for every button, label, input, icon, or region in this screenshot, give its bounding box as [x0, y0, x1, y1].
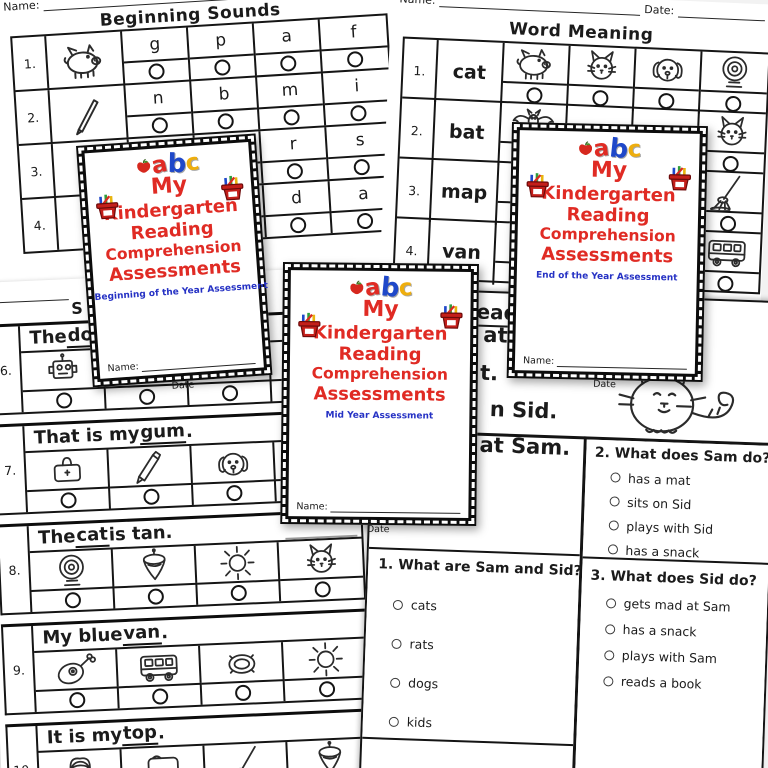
cover-name-row: Name: [107, 353, 255, 374]
pig-icon [58, 38, 110, 82]
answer-bubble [353, 159, 370, 176]
page-title-fragment: S [71, 299, 84, 319]
answer-option: dogs [390, 675, 575, 696]
option-bubble [389, 716, 399, 726]
answer-bubble [357, 213, 374, 230]
cover-date-row: Date [554, 375, 655, 391]
dog-icon [209, 443, 257, 483]
dog-icon [644, 49, 692, 89]
bag-icon [43, 450, 91, 490]
answer-option: sits on Sid [609, 494, 768, 515]
answer-cell [259, 103, 324, 129]
answer-bubble [318, 681, 335, 698]
choice-letter: i [323, 69, 391, 103]
pig-icon [512, 43, 560, 83]
picture-cell [34, 649, 119, 690]
choice-letter: f [320, 15, 388, 49]
answer-bubble [717, 275, 734, 292]
pen-icon [62, 92, 114, 136]
answer-cell [193, 479, 277, 505]
option-label: gets mad at Sam [623, 596, 731, 615]
answer-option: has a snack [607, 542, 768, 563]
answer-bubble [350, 105, 367, 122]
option-label: sits on Sid [627, 494, 692, 511]
story-line-fragment: t. [480, 361, 499, 386]
answer-bubble [68, 692, 85, 709]
cover-date-row: Date [328, 520, 429, 535]
name-line [0, 299, 69, 304]
choice-letter: p [188, 24, 254, 58]
answer-bubble [592, 90, 609, 107]
row-number: 10. [7, 726, 41, 768]
sentence-row: 10.It is my top. [5, 708, 375, 768]
picture-choice-cell [700, 52, 768, 117]
question-2-box: 2. What does Sam do?has a matsits on Sid… [582, 439, 768, 564]
letter-choice-cell: r [260, 127, 329, 183]
answer-bubble [214, 59, 231, 76]
cover-title-line: Comprehension [290, 365, 470, 385]
sentence-keyword: gum [139, 420, 186, 445]
picture-cell [503, 43, 569, 84]
picture-cell [113, 546, 198, 587]
flower-pot-icon [665, 163, 696, 196]
option-bubble [604, 650, 614, 660]
logo-letter-a: a [149, 152, 169, 178]
abc-logo: abc [135, 149, 200, 179]
name-label: Name: [399, 0, 436, 7]
sentence-pre: It is my [46, 724, 122, 748]
answer-bubble [722, 156, 739, 173]
logo-letter-b: b [379, 274, 400, 302]
answer-bubble [148, 63, 165, 80]
letter-choice-cell: i [323, 69, 392, 125]
flower-pot-icon [522, 170, 553, 203]
answer-cell [266, 211, 331, 237]
choice-letter: g [122, 28, 188, 62]
sentence-pre: That is my [33, 423, 140, 449]
answer-bubble [217, 113, 234, 130]
flower-pot-icon [91, 191, 123, 225]
answer-bubble [234, 685, 251, 702]
apple-icon [349, 280, 365, 296]
answer-option: reads a book [603, 673, 765, 694]
answer-cell [110, 483, 194, 509]
flower-pot-icon [216, 172, 248, 206]
answer-cell [31, 586, 115, 612]
option-bubble [393, 599, 403, 609]
answer-cell [256, 50, 321, 76]
picture-cell [283, 639, 368, 680]
answer-cell [27, 487, 111, 513]
sentence-post: . [161, 622, 169, 643]
picture-choice-cell [634, 49, 703, 114]
cover-title-line: Assessments [290, 383, 470, 406]
sentence-pre: The [38, 526, 76, 549]
logo-letter-b: b [608, 135, 629, 163]
question-label: What are Sam and Sid? [398, 557, 582, 579]
question-text: 3. What does Sid do? [590, 568, 768, 590]
answer-cell [119, 683, 203, 709]
name-label: Name: [523, 355, 554, 367]
sentence-pre: My blue [42, 624, 123, 648]
date-label: Date [554, 378, 655, 391]
logo-letter-c: c [184, 151, 201, 176]
picture-choice-cell [502, 43, 571, 108]
option-label: has a snack [622, 622, 696, 640]
sentence-post: is tan. [108, 522, 172, 546]
answer-bubble [226, 485, 243, 502]
choice-letter: m [257, 73, 323, 107]
answer-bubble [151, 117, 168, 134]
mop-icon [706, 172, 754, 212]
answer-option: rats [391, 636, 576, 657]
option-bubble [610, 472, 620, 482]
name-line [557, 366, 687, 370]
question-number: 3. [590, 568, 610, 585]
top-icon [130, 546, 178, 586]
name-row-fragment: Name: [0, 287, 69, 305]
name-line [331, 512, 461, 514]
picture-cell [204, 742, 289, 768]
sentence-pre: The [29, 326, 67, 349]
picture-cell [117, 646, 202, 687]
option-bubble [609, 496, 619, 506]
answer-bubble [347, 51, 364, 68]
choice-letter: n [125, 82, 191, 116]
cat-icon [708, 112, 756, 152]
cover-mid-year: abcMyKindergartenReadingComprehensionAss… [280, 262, 479, 526]
fan-icon [47, 550, 95, 590]
cover-title-line: Assessments [517, 243, 697, 268]
picture-cell [49, 85, 128, 142]
answer-cell [190, 54, 255, 80]
letter-choice-cell: d [264, 181, 333, 237]
row-number: 9. [3, 626, 37, 713]
answer-bubble [60, 492, 77, 509]
sentence-post: . [157, 722, 165, 743]
sentence-keyword: cat [75, 524, 109, 548]
logo-letter-c: c [627, 138, 642, 162]
picture-cell [279, 539, 364, 580]
picture-cell [698, 112, 766, 153]
question-number: 1. [378, 556, 398, 573]
cat-icon [578, 46, 626, 86]
cover-title-line: Reading [290, 343, 470, 366]
mop-icon [222, 742, 270, 768]
cover-name-row: Name: [523, 355, 687, 369]
girl-icon [56, 750, 104, 768]
flower-pot-icon [294, 310, 324, 342]
flower-pot-icon [436, 302, 466, 334]
answer-option: gets mad at Sam [605, 595, 767, 616]
answer-bubble [143, 488, 160, 505]
answer-cell [114, 583, 198, 609]
option-label: cats [411, 597, 437, 613]
picture-cell [39, 749, 124, 768]
cat-icon [297, 539, 345, 579]
picture-cell [30, 549, 115, 590]
cover-date-row: Date [137, 374, 230, 394]
question-text: 1. What are Sam and Sid? [378, 556, 579, 579]
cover-subtitle: End of the Year Assessment [517, 270, 697, 284]
picture-cell [200, 642, 285, 683]
fan-icon [711, 52, 759, 92]
answer-bubble [280, 55, 297, 72]
choice-letter: b [191, 77, 257, 111]
option-label: has a snack [625, 542, 699, 560]
answer-cell [202, 679, 286, 705]
picture-cell [25, 450, 110, 491]
apple-icon [577, 140, 593, 156]
letter-choice-cell: b [191, 77, 260, 133]
word-cell: bat [433, 100, 502, 165]
option-label: reads a book [621, 674, 702, 692]
choice-letter: d [264, 181, 330, 215]
cover-beginning-of-year: abcMyKindergartenReadingComprehensionAss… [76, 133, 272, 387]
option-label: dogs [408, 675, 439, 691]
date-label: Date [328, 523, 429, 535]
row-number: 1. [402, 39, 439, 102]
answer-cell [285, 675, 369, 701]
cover-subtitle: Mid Year Assessment [289, 410, 469, 422]
question-label: What does Sam do? [615, 445, 768, 466]
answer-bubble [526, 87, 543, 104]
question-number: 2. [595, 444, 615, 461]
option-bubble [605, 624, 615, 634]
option-bubble [390, 677, 400, 687]
row-number: 4. [22, 198, 59, 252]
picture-cell [635, 49, 701, 90]
answer-cell [127, 111, 192, 137]
van-icon [703, 232, 751, 272]
logo-letter-c: c [398, 276, 413, 300]
picture-cell [196, 542, 281, 583]
robot-icon [39, 350, 87, 390]
abc-logo: abc [577, 135, 641, 162]
cover-name-row: Name: [296, 501, 460, 514]
question-3-box: 3. What does Sid do?gets mad at Samhas a… [574, 560, 768, 768]
choice-letter: a [254, 20, 320, 54]
answer-bubble [725, 96, 742, 113]
row-number: 7. [0, 426, 28, 513]
answer-cell [280, 576, 364, 602]
name-label: Name: [107, 361, 139, 374]
cover-end-of-year: abcMyKindergartenReadingComprehensionAss… [507, 122, 708, 382]
sun-icon [213, 543, 261, 583]
answer-option: plays with Sid [608, 518, 768, 539]
answer-cell [322, 45, 389, 71]
letter-choice-cell: m [257, 73, 326, 129]
choice-letter: r [260, 127, 326, 161]
answer-cell [124, 58, 189, 84]
story-line-fragment: n Sid. [489, 397, 557, 423]
row-number: 3. [397, 158, 434, 221]
cot-icon [139, 746, 187, 768]
question-text: 2. What does Sam do? [595, 444, 768, 466]
letter-choice-cell: a [254, 19, 323, 75]
answer-bubble [720, 216, 737, 233]
option-bubble [391, 638, 401, 648]
answer-bubble [286, 163, 303, 180]
option-bubble [608, 520, 618, 530]
answer-bubble [314, 581, 331, 598]
answer-option: kids [389, 714, 574, 735]
answer-cell [193, 107, 258, 133]
sun-icon [301, 639, 349, 679]
answer-cell [262, 157, 327, 183]
answer-bubble [151, 688, 168, 705]
option-label: rats [409, 636, 434, 652]
answer-option: has a mat [610, 470, 768, 491]
sentence-post: . [185, 421, 193, 442]
option-label: plays with Sid [626, 518, 713, 536]
name-label: Name: [296, 501, 327, 512]
answer-option: plays with Sam [604, 647, 766, 668]
word-cell: cat [436, 40, 505, 105]
letter-choice-cell: p [188, 23, 257, 79]
answer-bubble [658, 93, 675, 110]
sentence-keyword: van [122, 621, 162, 646]
name-label: Name: [3, 0, 40, 14]
answer-bubble [290, 217, 307, 234]
answer-bubble [64, 592, 81, 609]
letter-choice-cell: g [122, 28, 191, 84]
row-number: 8. [0, 526, 32, 613]
row-number: 1. [12, 36, 49, 90]
answer-bubble [230, 585, 247, 602]
question-1-box: 1. What are Sam and Sid?catsratsdogskids [362, 547, 580, 746]
option-bubble [603, 676, 613, 686]
row-number: 3. [19, 144, 56, 198]
nut-icon [217, 642, 265, 682]
row-number: 2. [16, 90, 53, 144]
answer-option: cats [393, 597, 578, 618]
abc-logo: abc [349, 275, 413, 302]
worksheet-preview-canvas: Name: Date: Beginning Sounds 1.gpaf2.nbm… [0, 0, 768, 768]
sentence-row: 9.My blue van. [1, 608, 371, 715]
ham-icon [52, 650, 100, 690]
picture-cell [121, 746, 206, 768]
question-label: What does Sid do? [610, 568, 757, 589]
option-bubble [607, 544, 617, 554]
option-label: plays with Sam [622, 648, 718, 666]
letter-choice-cell: n [125, 81, 194, 137]
top-icon [306, 739, 354, 768]
name-line [142, 363, 256, 372]
answer-bubble [147, 588, 164, 605]
name-line [439, 6, 640, 16]
logo-letter-b: b [167, 151, 186, 177]
picture-cell [569, 46, 635, 87]
answer-cell [23, 387, 107, 413]
picture-cell [191, 442, 276, 483]
picture-cell [46, 32, 125, 89]
answer-cell [197, 579, 281, 605]
sentence-keyword: top [122, 722, 159, 747]
marker-icon [126, 446, 174, 486]
answer-cell [36, 686, 120, 712]
option-label: has a mat [628, 470, 691, 487]
option-bubble [605, 598, 615, 608]
option-label: kids [407, 714, 433, 730]
picture-cell [108, 446, 193, 487]
date-line [328, 520, 429, 522]
word-cell: map [431, 160, 500, 225]
answer-bubble [55, 392, 72, 409]
answer-cell [325, 99, 392, 125]
picture-choice-cell [568, 46, 637, 111]
date-label: Date: [644, 3, 675, 17]
answer-option: has a snack [604, 621, 766, 642]
date-line [678, 17, 765, 22]
answer-bubble [283, 109, 300, 126]
row-number: 2. [399, 99, 436, 162]
picture-cell [701, 52, 768, 93]
van-icon [135, 646, 183, 686]
letter-choice-cell: f [320, 15, 389, 71]
